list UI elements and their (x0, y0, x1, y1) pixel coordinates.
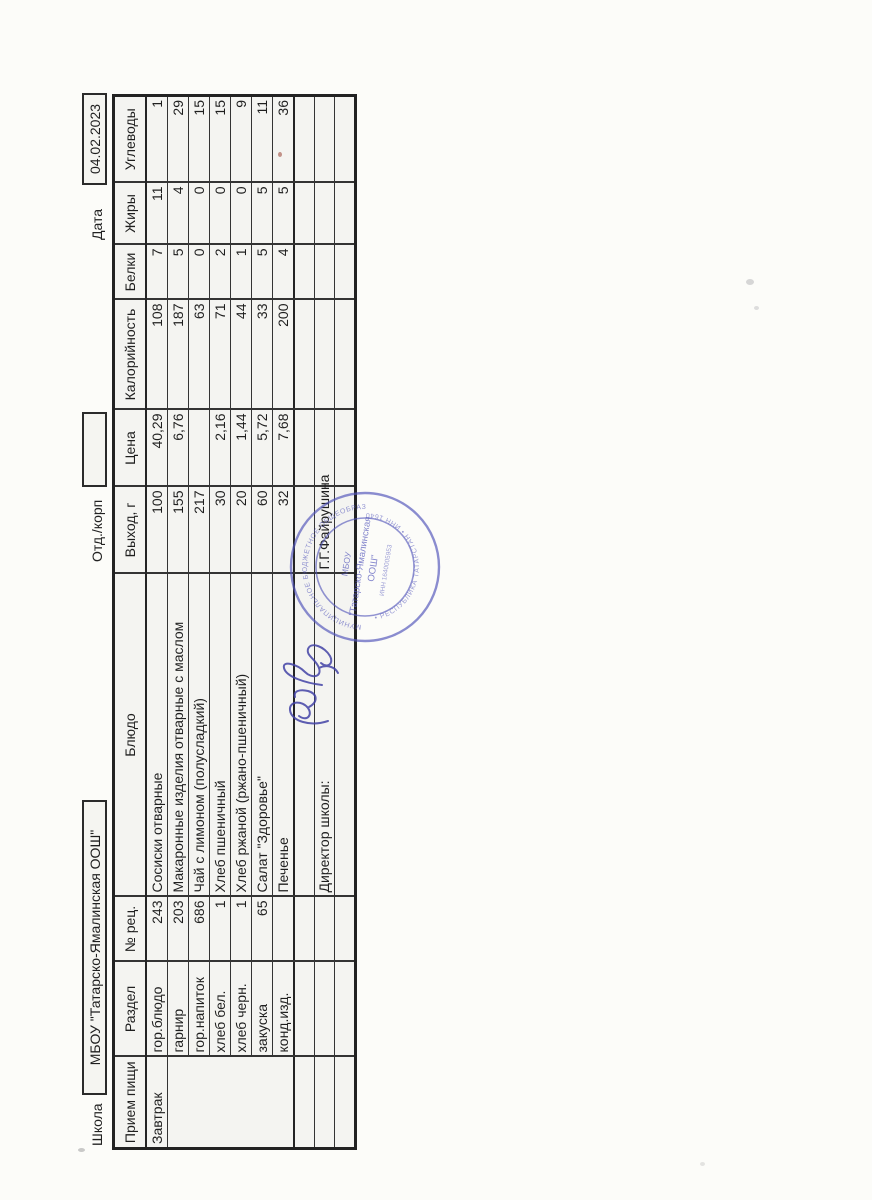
cell-price: 40,29 (146, 410, 168, 487)
column-header: Раздел (114, 962, 147, 1057)
date-value-box: 04.02.2023 (82, 93, 107, 185)
school-name: МБОУ "Татарско-Ямалинская ООШ" (87, 830, 103, 1066)
cell-dish: Хлеб ржаной (ржано-пшеничный) (231, 574, 252, 897)
cell-dish: Макаронные изделия отварные с маслом (168, 574, 189, 897)
footer-cell (294, 245, 315, 300)
cell-rec: 203 (168, 897, 189, 962)
cell-price (189, 410, 210, 487)
cell-kcal: 71 (210, 300, 231, 410)
cell-rec: 1 (231, 897, 252, 962)
column-header: Жиры (114, 183, 147, 245)
footer-cell (335, 410, 356, 487)
stamp-center-line4: ИНН 1640005953 (379, 544, 394, 597)
cell-rec: 243 (146, 897, 168, 962)
footer-cell (315, 183, 335, 245)
cell-price: 5,72 (252, 410, 273, 487)
stamp-center-line3: ООШ" (366, 554, 381, 582)
cell-price: 6,76 (168, 410, 189, 487)
footer-cell (315, 300, 335, 410)
footer-cell (315, 1057, 335, 1149)
footer-cell (335, 897, 356, 962)
footer-cell (335, 1057, 356, 1149)
footer-cell (335, 183, 356, 245)
cell-protein: 7 (146, 245, 168, 300)
cell-protein: 1 (231, 245, 252, 300)
cell-razdel: хлеб черн. (231, 962, 252, 1057)
footer-cell (294, 1057, 315, 1149)
department-value-box (82, 412, 107, 487)
cell-kcal: 187 (168, 300, 189, 410)
school-label: Школа (89, 1103, 105, 1146)
cell-price: 1,44 (231, 410, 252, 487)
menu-row: хлеб черн.1Хлеб ржаной (ржано-пшеничный)… (231, 96, 252, 1149)
footer-cell (315, 96, 335, 183)
cell-carbs: 15 (210, 96, 231, 183)
footer-cell (335, 962, 356, 1057)
cell-dish: Хлеб пшеничный (210, 574, 231, 897)
cell-fat: 0 (189, 183, 210, 245)
column-header: Белки (114, 245, 147, 300)
scan-speck (754, 306, 759, 310)
footer-cell (294, 300, 315, 410)
cell-fat: 5 (273, 183, 295, 245)
cell-razdel: закуска (252, 962, 273, 1057)
official-stamp: МУНИЦИПАЛЬНОЕ БЮДЖЕТНОЕ ОБЩЕОБРАЗОВАТЕЛЬ… (287, 489, 443, 645)
footer-cell (294, 962, 315, 1057)
scan-speck (78, 1148, 85, 1152)
cell-carbs: 1 (146, 96, 168, 183)
cell-kcal: 108 (146, 300, 168, 410)
menu-row: закуска65Салат "Здоровье"605,72335511 (252, 96, 273, 1149)
scan-speck-red (278, 152, 282, 157)
meal-cell-empty (168, 1057, 295, 1149)
date-value: 04.02.2023 (87, 104, 103, 174)
department-label: Отд./корп (89, 500, 105, 562)
cell-fat: 0 (210, 183, 231, 245)
cell-dish: Салат "Здоровье" (252, 574, 273, 897)
cell-protein: 4 (273, 245, 295, 300)
meal-cell: Завтрак (146, 1057, 168, 1149)
cell-dish: Чай с лимоном (полусладкий) (189, 574, 210, 897)
cell-protein: 2 (210, 245, 231, 300)
scan-speck (746, 279, 754, 285)
menu-row: гарнир203Макаронные изделия отварные с м… (168, 96, 189, 1149)
cell-fat: 11 (146, 183, 168, 245)
cell-out: 100 (146, 487, 168, 574)
footer-cell (315, 897, 335, 962)
column-header: Блюдо (114, 574, 147, 897)
column-header: Углеводы (114, 96, 147, 183)
cell-out: 30 (210, 487, 231, 574)
cell-carbs: 11 (252, 96, 273, 183)
footer-cell (294, 897, 315, 962)
cell-dish: Сосиски отварные (146, 574, 168, 897)
cell-protein: 5 (168, 245, 189, 300)
footer-cell (294, 410, 315, 487)
footer-cell (335, 96, 356, 183)
cell-protein: 0 (189, 245, 210, 300)
cell-carbs: 29 (168, 96, 189, 183)
cell-fat: 4 (168, 183, 189, 245)
scan-speck (700, 1162, 705, 1166)
footer-cell (335, 300, 356, 410)
cell-fat: 5 (252, 183, 273, 245)
column-header: Цена (114, 410, 147, 487)
menu-row: хлеб бел.1Хлеб пшеничный302,16712015 (210, 96, 231, 1149)
menu-row: гор.напиток686Чай с лимоном (полусладкий… (189, 96, 210, 1149)
column-header: № рец. (114, 897, 147, 962)
column-header: Прием пищи (114, 1057, 147, 1149)
table-header-row: Прием пищиРаздел№ рец.БлюдоВыход, гЦенаК… (114, 96, 147, 1149)
cell-kcal: 200 (273, 300, 295, 410)
cell-fat: 0 (231, 183, 252, 245)
menu-row: Завтракгор.блюдо243Сосиски отварные10040… (146, 96, 168, 1149)
cell-carbs: 9 (231, 96, 252, 183)
footer-cell (315, 245, 335, 300)
header-line: Школа МБОУ "Татарско-Ямалинская ООШ" Отд… (82, 93, 106, 1150)
cell-rec: 1 (210, 897, 231, 962)
cell-carbs: 36 (273, 96, 295, 183)
cell-price: 2,16 (210, 410, 231, 487)
cell-razdel: гарнир (168, 962, 189, 1057)
cell-rec: 686 (189, 897, 210, 962)
cell-price: 7,68 (273, 410, 295, 487)
cell-out: 155 (168, 487, 189, 574)
cell-rec (273, 897, 295, 962)
date-label: Дата (89, 209, 105, 240)
footer-cell (294, 96, 315, 183)
footer-cell (315, 962, 335, 1057)
school-name-box: МБОУ "Татарско-Ямалинская ООШ" (82, 800, 107, 1095)
cell-carbs: 15 (189, 96, 210, 183)
cell-out: 60 (252, 487, 273, 574)
cell-out: 20 (231, 487, 252, 574)
rotated-document: Школа МБОУ "Татарско-Ямалинская ООШ" Отд… (82, 93, 352, 1150)
column-header: Выход, г (114, 487, 147, 574)
column-header: Калорийность (114, 300, 147, 410)
cell-razdel: хлеб бел. (210, 962, 231, 1057)
cell-rec: 65 (252, 897, 273, 962)
cell-razdel: гор.напиток (189, 962, 210, 1057)
cell-kcal: 33 (252, 300, 273, 410)
cell-out: 217 (189, 487, 210, 574)
cell-razdel: гор.блюдо (146, 962, 168, 1057)
scanned-page: Школа МБОУ "Татарско-Ямалинская ООШ" Отд… (0, 0, 872, 1200)
footer-cell (294, 183, 315, 245)
cell-razdel: конд.изд. (273, 962, 295, 1057)
footer-cell (335, 245, 356, 300)
stamp-center-line1: МБОУ (339, 551, 353, 577)
director-signature (278, 626, 340, 730)
cell-protein: 5 (252, 245, 273, 300)
cell-kcal: 63 (189, 300, 210, 410)
cell-kcal: 44 (231, 300, 252, 410)
